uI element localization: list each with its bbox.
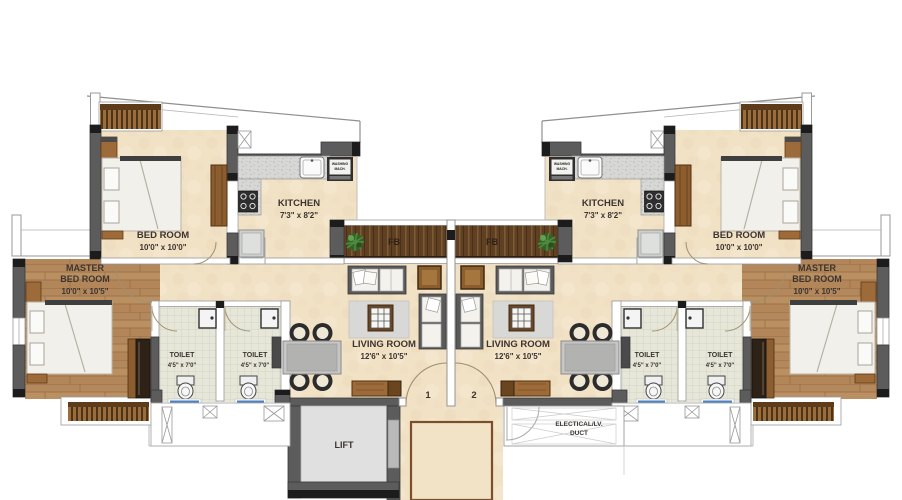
svg-text:BED ROOM: BED ROOM (792, 274, 842, 284)
svg-text:10'0" x 10'0": 10'0" x 10'0" (140, 243, 187, 252)
svg-text:MACH.: MACH. (334, 167, 345, 171)
svg-text:10'0" x 10'5": 10'0" x 10'5" (794, 287, 841, 296)
svg-text:4'5" x 7'0": 4'5" x 7'0" (168, 363, 197, 369)
svg-text:TOILET: TOILET (708, 352, 733, 359)
svg-text:MASTER: MASTER (66, 263, 105, 273)
svg-text:FB: FB (388, 237, 400, 247)
svg-text:4'5" x 7'0": 4'5" x 7'0" (706, 363, 735, 369)
svg-text:LIFT: LIFT (335, 440, 354, 450)
svg-text:ELECTICAL/LV.: ELECTICAL/LV. (555, 421, 603, 428)
svg-text:BED ROOM: BED ROOM (60, 274, 110, 284)
svg-text:10'0" x 10'5": 10'0" x 10'5" (62, 287, 109, 296)
svg-text:TOILET: TOILET (635, 352, 660, 359)
svg-text:4'5" x 7'0": 4'5" x 7'0" (241, 363, 270, 369)
svg-text:WASHING: WASHING (554, 162, 571, 166)
svg-text:KITCHEN: KITCHEN (278, 198, 320, 209)
svg-text:1: 1 (425, 390, 431, 401)
svg-text:10'0" x 10'0": 10'0" x 10'0" (716, 243, 763, 252)
svg-text:FB: FB (486, 237, 498, 247)
svg-text:TOILET: TOILET (243, 352, 268, 359)
svg-text:7'3" x 8'2": 7'3" x 8'2" (280, 211, 318, 220)
svg-text:4'5" x 7'0": 4'5" x 7'0" (633, 363, 662, 369)
svg-text:TOILET: TOILET (170, 352, 195, 359)
svg-text:KITCHEN: KITCHEN (582, 198, 624, 209)
svg-text:7'3" x 8'2": 7'3" x 8'2" (584, 211, 622, 220)
svg-text:DUCT: DUCT (570, 430, 588, 437)
svg-text:LIVING ROOM: LIVING ROOM (352, 339, 416, 350)
svg-text:MASTER: MASTER (798, 263, 837, 273)
svg-text:12'6" x 10'5": 12'6" x 10'5" (495, 352, 542, 361)
svg-text:2: 2 (471, 390, 476, 401)
svg-text:12'6" x 10'5": 12'6" x 10'5" (361, 352, 408, 361)
svg-text:BED ROOM: BED ROOM (137, 230, 189, 241)
svg-text:LIVING ROOM: LIVING ROOM (486, 339, 550, 350)
svg-text:MACH.: MACH. (556, 167, 567, 171)
svg-text:WASHING: WASHING (332, 162, 349, 166)
svg-text:BED ROOM: BED ROOM (713, 230, 765, 241)
